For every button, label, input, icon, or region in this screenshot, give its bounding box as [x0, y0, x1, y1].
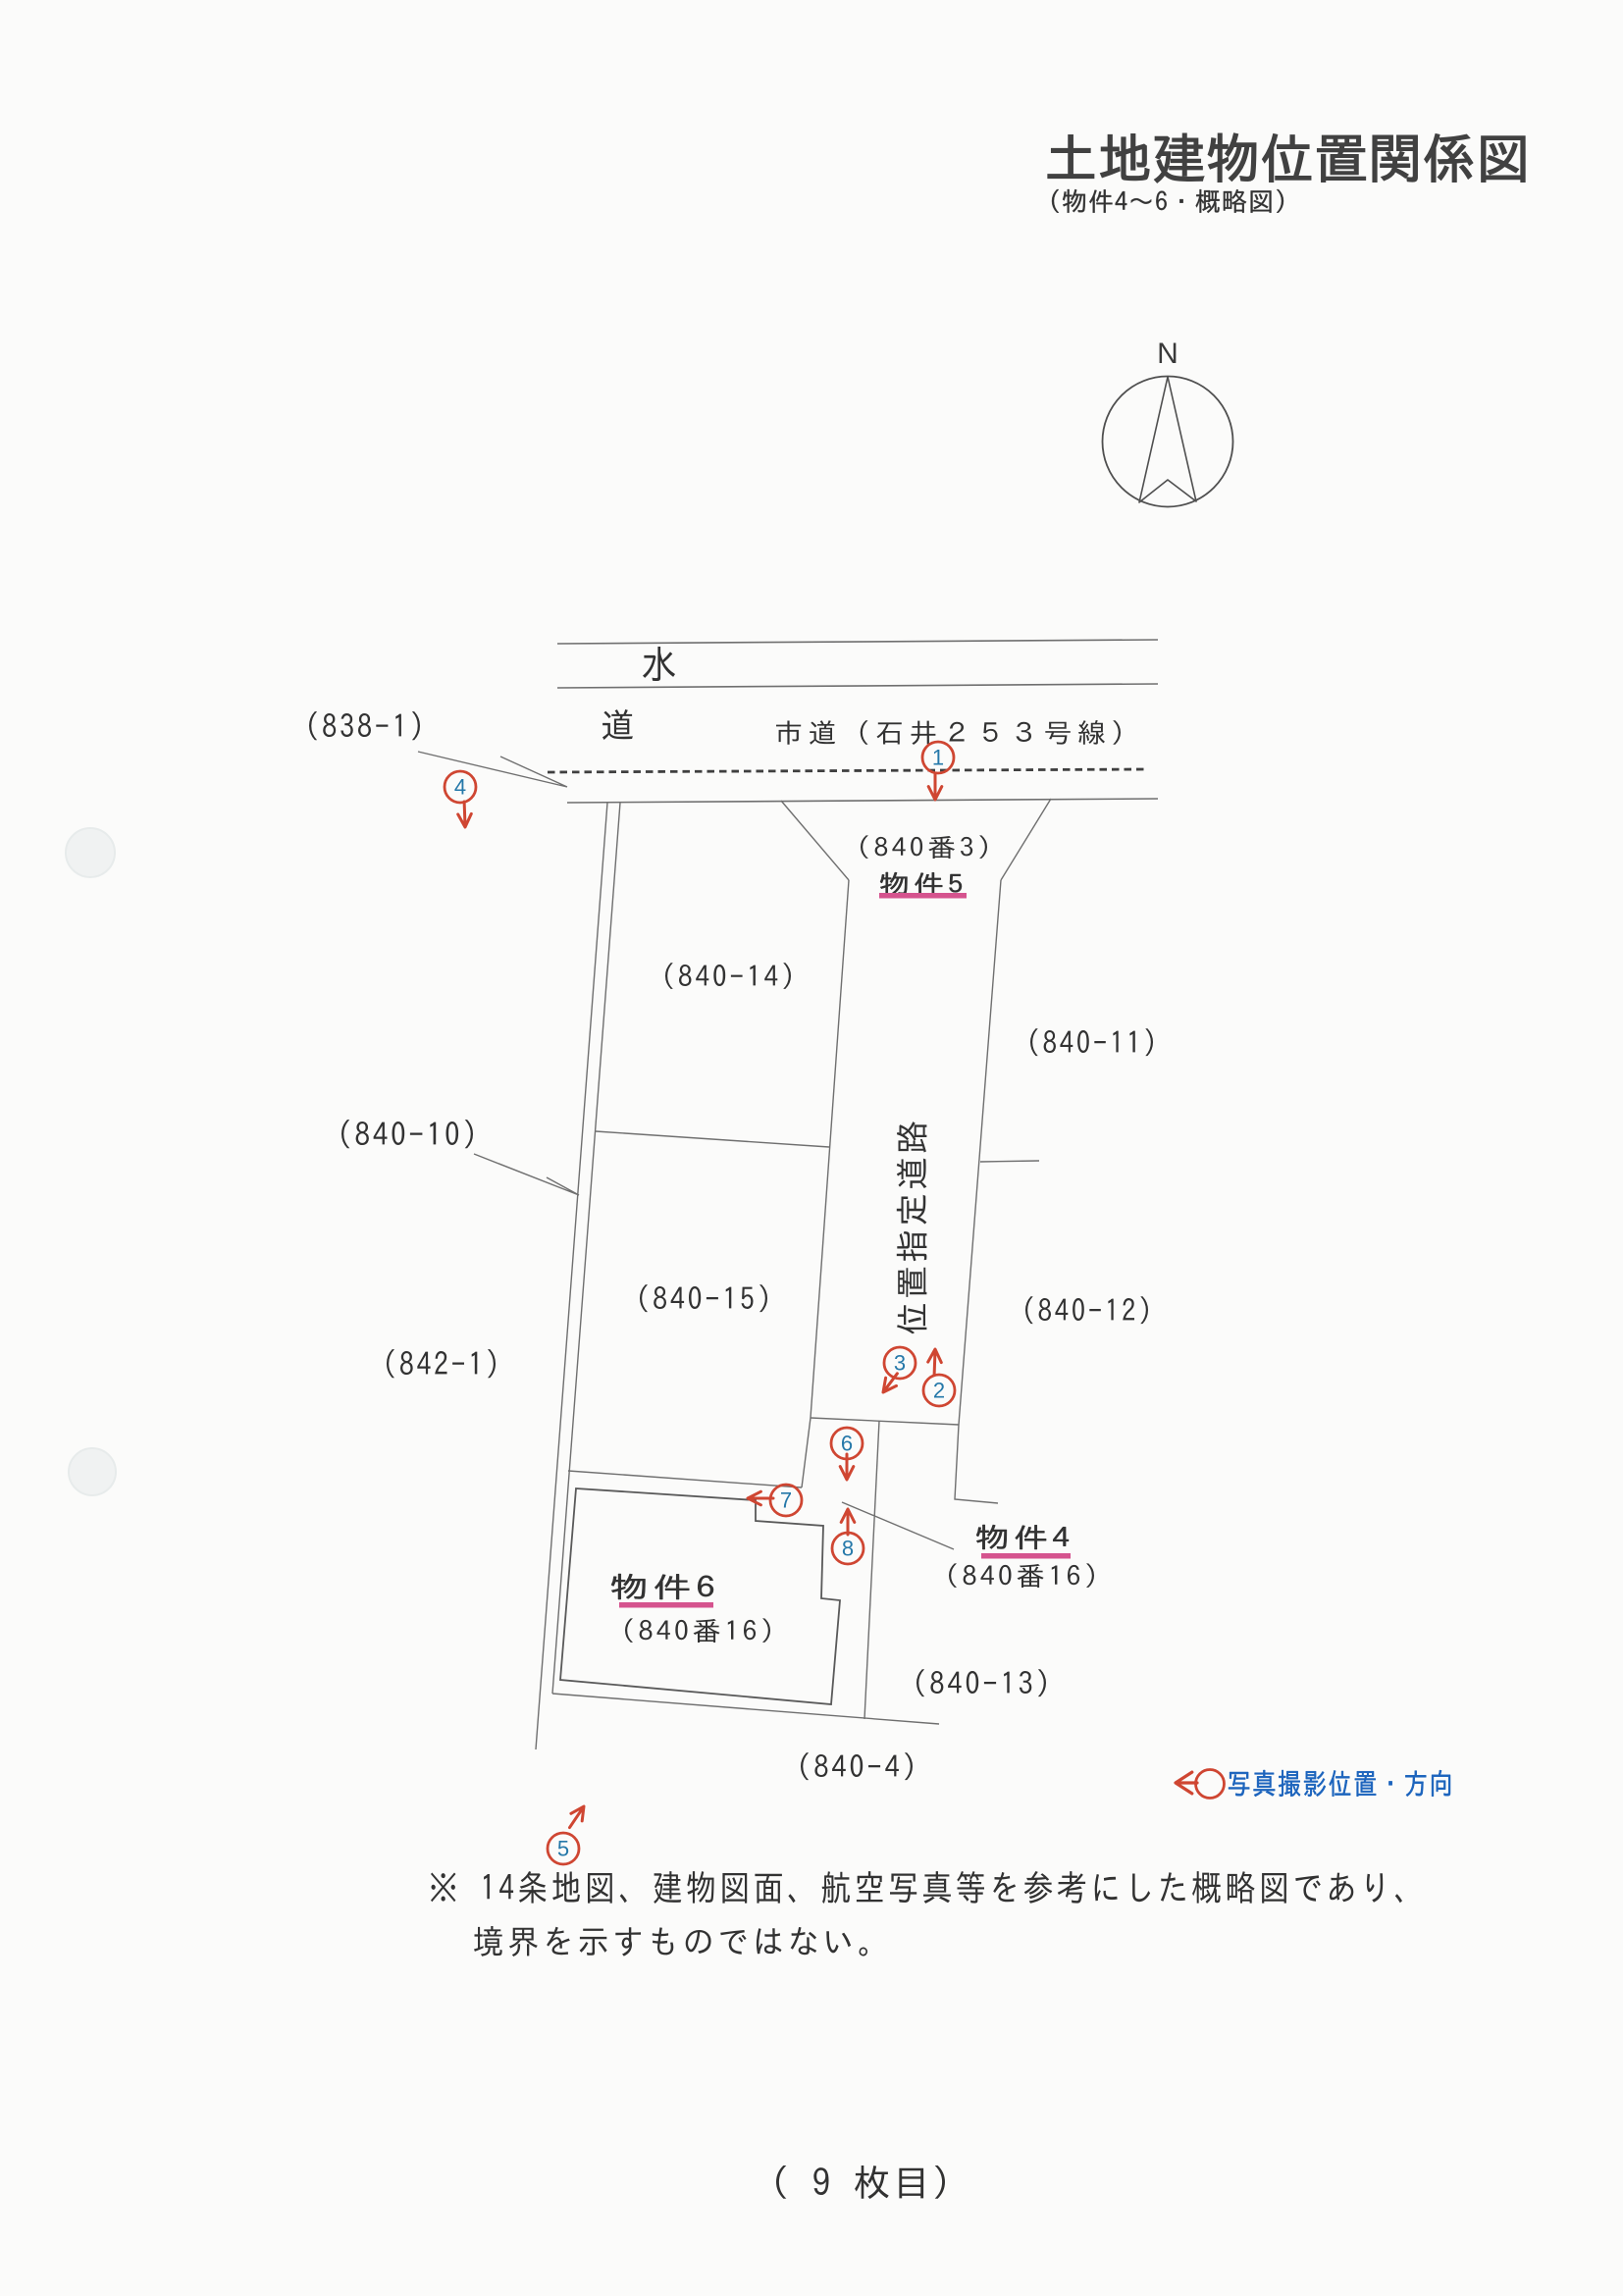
svg-text:5: 5 — [557, 1837, 569, 1861]
svg-text:1: 1 — [932, 746, 944, 770]
svg-text:3: 3 — [894, 1351, 906, 1376]
svg-text:N: N — [1157, 338, 1178, 370]
svg-text:6: 6 — [841, 1432, 853, 1456]
svg-text:2: 2 — [933, 1379, 945, 1403]
svg-text:8: 8 — [842, 1537, 854, 1561]
svg-text:7: 7 — [780, 1488, 792, 1513]
svg-text:4: 4 — [454, 775, 466, 800]
